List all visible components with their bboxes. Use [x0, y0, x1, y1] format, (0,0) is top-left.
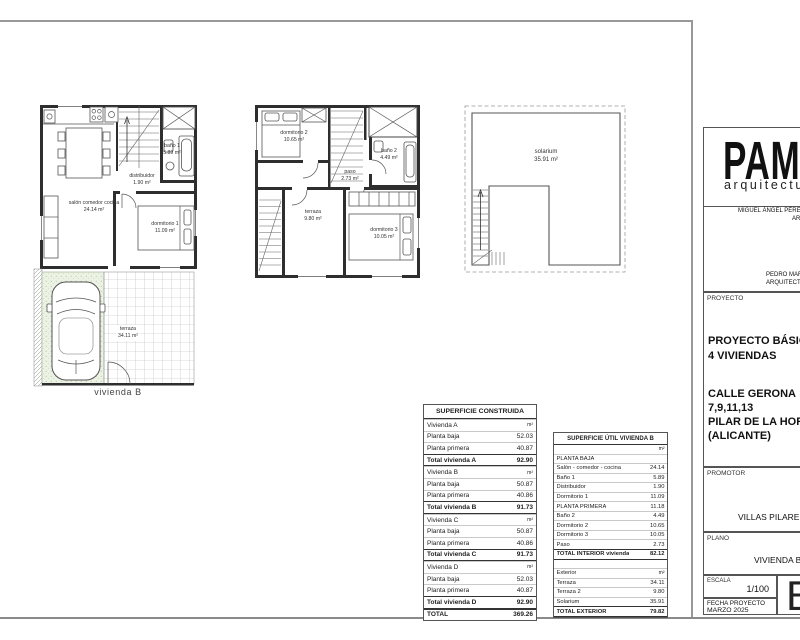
kitchen-icons [43, 107, 118, 124]
table-body: m²PLANTA BAJASalón - comedor - cocina24.… [554, 445, 667, 617]
superficie-construida-table: SUPERFICIE CONSTRUIDA Vivienda Am²Planta… [423, 404, 537, 621]
table-row: Planta primera40.87 [424, 442, 536, 454]
party-wall-hatch [34, 269, 42, 386]
table-row: PLANTA BAJA [554, 454, 667, 464]
proyecto-box: PROYECTO PROYECTO BÁSICO 4 VIVIENDAS CAL… [703, 292, 800, 467]
row-label: Paso [557, 542, 570, 548]
row-label: PLANTA PRIMERA [557, 504, 607, 510]
wardrobe-icon [349, 192, 415, 206]
address-line2: 7,9,11,13 [708, 402, 753, 414]
architect-title-2: ARQUITECTO [766, 280, 800, 286]
table-row: TOTAL369.26 [424, 609, 536, 621]
table-row: Planta baja50.87 [424, 478, 536, 490]
plano-label: PLANO [707, 535, 729, 542]
room-name: terraza [304, 209, 322, 216]
room-label-salon: salón comedor cocina 24.14 m² [69, 200, 119, 214]
architect-title-1: AR [792, 216, 800, 222]
sofa-icon [44, 196, 58, 258]
row-label: Dormitorio 3 [557, 532, 589, 538]
sheet-letter: B [786, 572, 800, 620]
divider [704, 206, 800, 207]
room-area: 11.09 m² [151, 228, 178, 235]
row-value: 10.65 [650, 523, 665, 529]
address-line3: PILAR DE LA HORAD [708, 416, 800, 428]
shaft-icon [369, 107, 417, 137]
table-row: Salón - comedor - cocina24.14 [554, 463, 667, 473]
room-area: 35.91 m² [534, 156, 558, 164]
row-value: 9.80 [653, 589, 664, 595]
room-label-terraza: terraza 34.11 m² [116, 325, 140, 341]
room-label-bano1: baño 1 5.89 m² [163, 143, 181, 157]
room-label-dormitorio1: dormitorio 1 11.09 m² [151, 221, 178, 235]
architect-name-2: PEDRO MAR [766, 272, 800, 278]
table-row: Terraza 29.80 [554, 587, 667, 597]
row-label: Baño 1 [557, 475, 575, 481]
row-label: Distribuidor [557, 484, 586, 490]
row-value: 79.82 [650, 609, 665, 615]
room-name: baño 2 [380, 148, 398, 155]
table-row: m² [554, 445, 667, 454]
table-row: Total vivienda B91.73 [424, 501, 536, 514]
table-row: Vivienda Bm² [424, 466, 536, 478]
row-label: Planta primera [427, 540, 469, 547]
fecha-value: MARZO 2025 [707, 607, 749, 614]
table-row: TOTAL INTERIOR vivienda82.12 [554, 549, 667, 560]
room-label-solarium: solarium 35.91 m² [534, 148, 558, 164]
row-value: 10.05 [650, 532, 665, 538]
table-row: Total vivienda C91.73 [424, 549, 536, 562]
room-name: terraza [118, 326, 138, 333]
plano-value: VIVIENDA B [754, 555, 800, 565]
row-label: Baño 2 [557, 513, 575, 519]
row-label: Vivienda B [427, 469, 458, 476]
room-name: dormitorio 3 [370, 227, 397, 234]
row-value: m² [527, 422, 533, 428]
row-value: 40.86 [517, 540, 533, 547]
room-name: solarium [534, 148, 558, 156]
car-icon [47, 282, 105, 380]
table-row: Vivienda Dm² [424, 561, 536, 573]
room-area: 4.49 m² [380, 155, 398, 162]
escala-label: ESCALA [707, 578, 731, 584]
room-name: distribuidor [129, 173, 154, 180]
table-row: Planta primera40.86 [424, 490, 536, 502]
address-line1: CALLE GERONA [708, 388, 796, 400]
row-label: Planta baja [427, 481, 460, 488]
room-area: 5.89 m² [163, 150, 181, 157]
row-label: Planta baja [427, 433, 460, 440]
drawing-sheet: salón comedor cocina 24.14 m² distribuid… [0, 0, 800, 640]
row-label: Exterior [557, 570, 577, 576]
sheet-letter-box: B [777, 575, 800, 615]
room-label-dormitorio2: dormitorio 2 10.65 m² [280, 130, 307, 144]
room-area: 1.90 m² [129, 180, 154, 187]
row-label: Planta baja [427, 576, 460, 583]
table-row: Vivienda Cm² [424, 514, 536, 526]
table-row: Total vivienda D92.90 [424, 596, 536, 609]
stairs-icon [119, 106, 159, 168]
table-row: Exteriorm² [554, 568, 667, 578]
superficie-util-table: SUPERFICIE ÚTIL VIVIENDA B m²PLANTA BAJA… [553, 432, 668, 618]
table-row: Planta baja52.03 [424, 431, 536, 443]
table-title: SUPERFICIE ÚTIL VIVIENDA B [554, 433, 667, 445]
escala-value: 1/100 [746, 584, 769, 594]
room-area: 2.73 m² [341, 176, 359, 183]
bathtub-icon [179, 136, 194, 176]
table-row [554, 560, 667, 569]
table-row: Dormitorio 111.09 [554, 492, 667, 502]
table-row: Vivienda Am² [424, 419, 536, 431]
row-label: Solarium [557, 599, 580, 605]
logo-box: PAMI arquitectura MIGUEL ÁNGEL PÉREZ AR … [703, 127, 800, 292]
row-label: Vivienda C [427, 517, 458, 524]
proyecto-line2: 4 VIVIENDAS [708, 350, 776, 362]
row-label: Total vivienda B [427, 504, 476, 511]
table-row: Dormitorio 210.65 [554, 520, 667, 530]
row-value: m² [527, 564, 533, 570]
row-value: m² [527, 470, 533, 476]
row-value: 91.73 [517, 551, 533, 558]
row-value: 52.03 [517, 576, 533, 583]
room-area: 9.80 m² [304, 216, 322, 223]
row-value: 34.11 [650, 580, 664, 586]
room-label-paso: paso 2.73 m² [341, 169, 359, 183]
row-value: 92.90 [517, 599, 533, 606]
row-value: 1.90 [653, 484, 664, 490]
table-row: Planta primera40.87 [424, 584, 536, 596]
row-value: m² [659, 446, 665, 452]
row-label: Planta primera [427, 587, 469, 594]
table-row: Distribuidor1.90 [554, 482, 667, 492]
room-name: dormitorio 2 [280, 130, 307, 137]
row-value: 4.49 [653, 513, 664, 519]
stairs-icon [259, 200, 281, 271]
room-name: baño 1 [163, 143, 181, 150]
row-value: 24.14 [650, 465, 665, 471]
room-label-distribuidor: distribuidor 1.90 m² [129, 173, 154, 187]
row-value: 92.90 [517, 457, 533, 464]
table-row: Dormitorio 310.05 [554, 530, 667, 540]
table-row: TOTAL EXTERIOR79.82 [554, 606, 667, 617]
row-value: 11.18 [650, 504, 664, 510]
row-label: Planta primera [427, 492, 469, 499]
row-value: 11.09 [650, 494, 664, 500]
row-value: 52.03 [517, 433, 533, 440]
room-label-terraza2: terraza 9.80 m² [304, 209, 322, 223]
room-name: dormitorio 1 [151, 221, 178, 228]
architect-name-1: MIGUEL ÁNGEL PÉREZ [738, 208, 800, 214]
row-label: Vivienda D [427, 564, 458, 571]
row-label: Planta baja [427, 528, 460, 535]
room-label-bano2: baño 2 4.49 m² [380, 148, 398, 162]
row-value: 82.12 [650, 551, 665, 557]
room-area: 10.05 m² [370, 234, 397, 241]
row-value: 91.73 [517, 504, 533, 511]
row-value: 2.73 [653, 542, 664, 548]
promotor-value: VILLAS PILAREÑ [738, 512, 800, 522]
shaft-icon [163, 107, 195, 129]
proyecto-line1: PROYECTO BÁSICO [708, 335, 800, 347]
table-row: Solarium35.91 [554, 597, 667, 607]
floor-plans-drawing [0, 0, 800, 640]
room-area: 10.65 m² [280, 137, 307, 144]
row-label: Terraza [557, 580, 576, 586]
table-row: Planta baja50.87 [424, 525, 536, 537]
row-label: TOTAL INTERIOR vivienda [557, 551, 630, 557]
table-row: Terraza34.11 [554, 578, 667, 588]
table-body: Vivienda Am²Planta baja52.03Planta prime… [424, 419, 536, 620]
promotor-box: PROMOTOR VILLAS PILAREÑ [703, 467, 800, 532]
studio-logo-subtitle: arquitectura [724, 178, 800, 192]
row-label: Dormitorio 2 [557, 523, 589, 529]
table-row: Baño 15.89 [554, 473, 667, 483]
row-label: Vivienda A [427, 422, 458, 429]
sink-icon [166, 162, 174, 170]
table-row: Planta baja52.03 [424, 573, 536, 585]
proyecto-label: PROYECTO [707, 295, 743, 302]
row-value: 40.87 [517, 587, 533, 594]
address-line4: (ALICANTE) [708, 430, 771, 442]
table-row: Planta primera40.86 [424, 537, 536, 549]
table-row: PLANTA PRIMERA11.18 [554, 501, 667, 511]
row-value: m² [527, 517, 533, 523]
table-title: SUPERFICIE CONSTRUIDA [424, 405, 536, 419]
row-label: Total vivienda A [427, 457, 476, 464]
room-label-dormitorio3: dormitorio 3 10.05 m² [368, 226, 399, 242]
row-value: 50.87 [517, 481, 533, 488]
row-label: Total vivienda C [427, 551, 476, 558]
fecha-label: FECHA PROYECTO [707, 600, 765, 607]
row-label: PLANTA BAJA [557, 456, 595, 462]
room-area: 24.14 m² [69, 207, 119, 214]
room-name: paso [341, 169, 359, 176]
row-value: 40.86 [517, 492, 533, 499]
escala-box: ESCALA 1/100 [703, 575, 777, 598]
room-area: 34.11 m² [118, 333, 138, 340]
row-label: Terraza 2 [557, 589, 581, 595]
row-label: Total vivienda D [427, 599, 476, 606]
row-value: 40.87 [517, 445, 533, 452]
row-value: 5.89 [653, 475, 664, 481]
room-name: salón comedor cocina [69, 200, 119, 207]
row-label: Planta primera [427, 445, 469, 452]
row-value: 369.26 [513, 611, 533, 618]
fecha-box: FECHA PROYECTO MARZO 2025 [703, 598, 777, 615]
row-value: 50.87 [517, 528, 533, 535]
table-row: Paso2.73 [554, 539, 667, 549]
bathtub-icon [404, 142, 416, 182]
table-row: Total vivienda A92.90 [424, 454, 536, 467]
row-label: Salón - comedor - cocina [557, 465, 621, 471]
row-label: TOTAL EXTERIOR [557, 609, 607, 615]
row-label: TOTAL [427, 611, 448, 618]
dining-table-icon [58, 128, 110, 178]
table-row: Baño 24.49 [554, 511, 667, 521]
row-label: Dormitorio 1 [557, 494, 589, 500]
row-value: 35.91 [650, 599, 665, 605]
promotor-label: PROMOTOR [707, 470, 745, 477]
row-value: m² [659, 570, 665, 576]
plano-box: PLANO VIVIENDA B [703, 532, 800, 575]
plan-caption: vivienda B [94, 387, 142, 397]
solarium-plan [465, 106, 625, 272]
